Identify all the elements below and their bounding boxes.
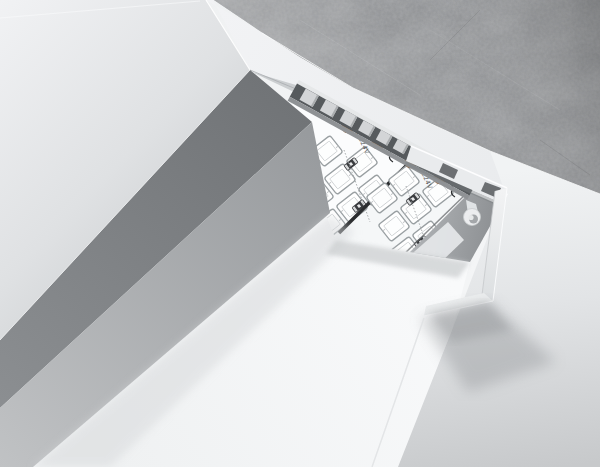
scene: DC24V + DC24V + xyxy=(0,0,600,467)
product-render: DC24V + DC24V + xyxy=(0,0,600,467)
